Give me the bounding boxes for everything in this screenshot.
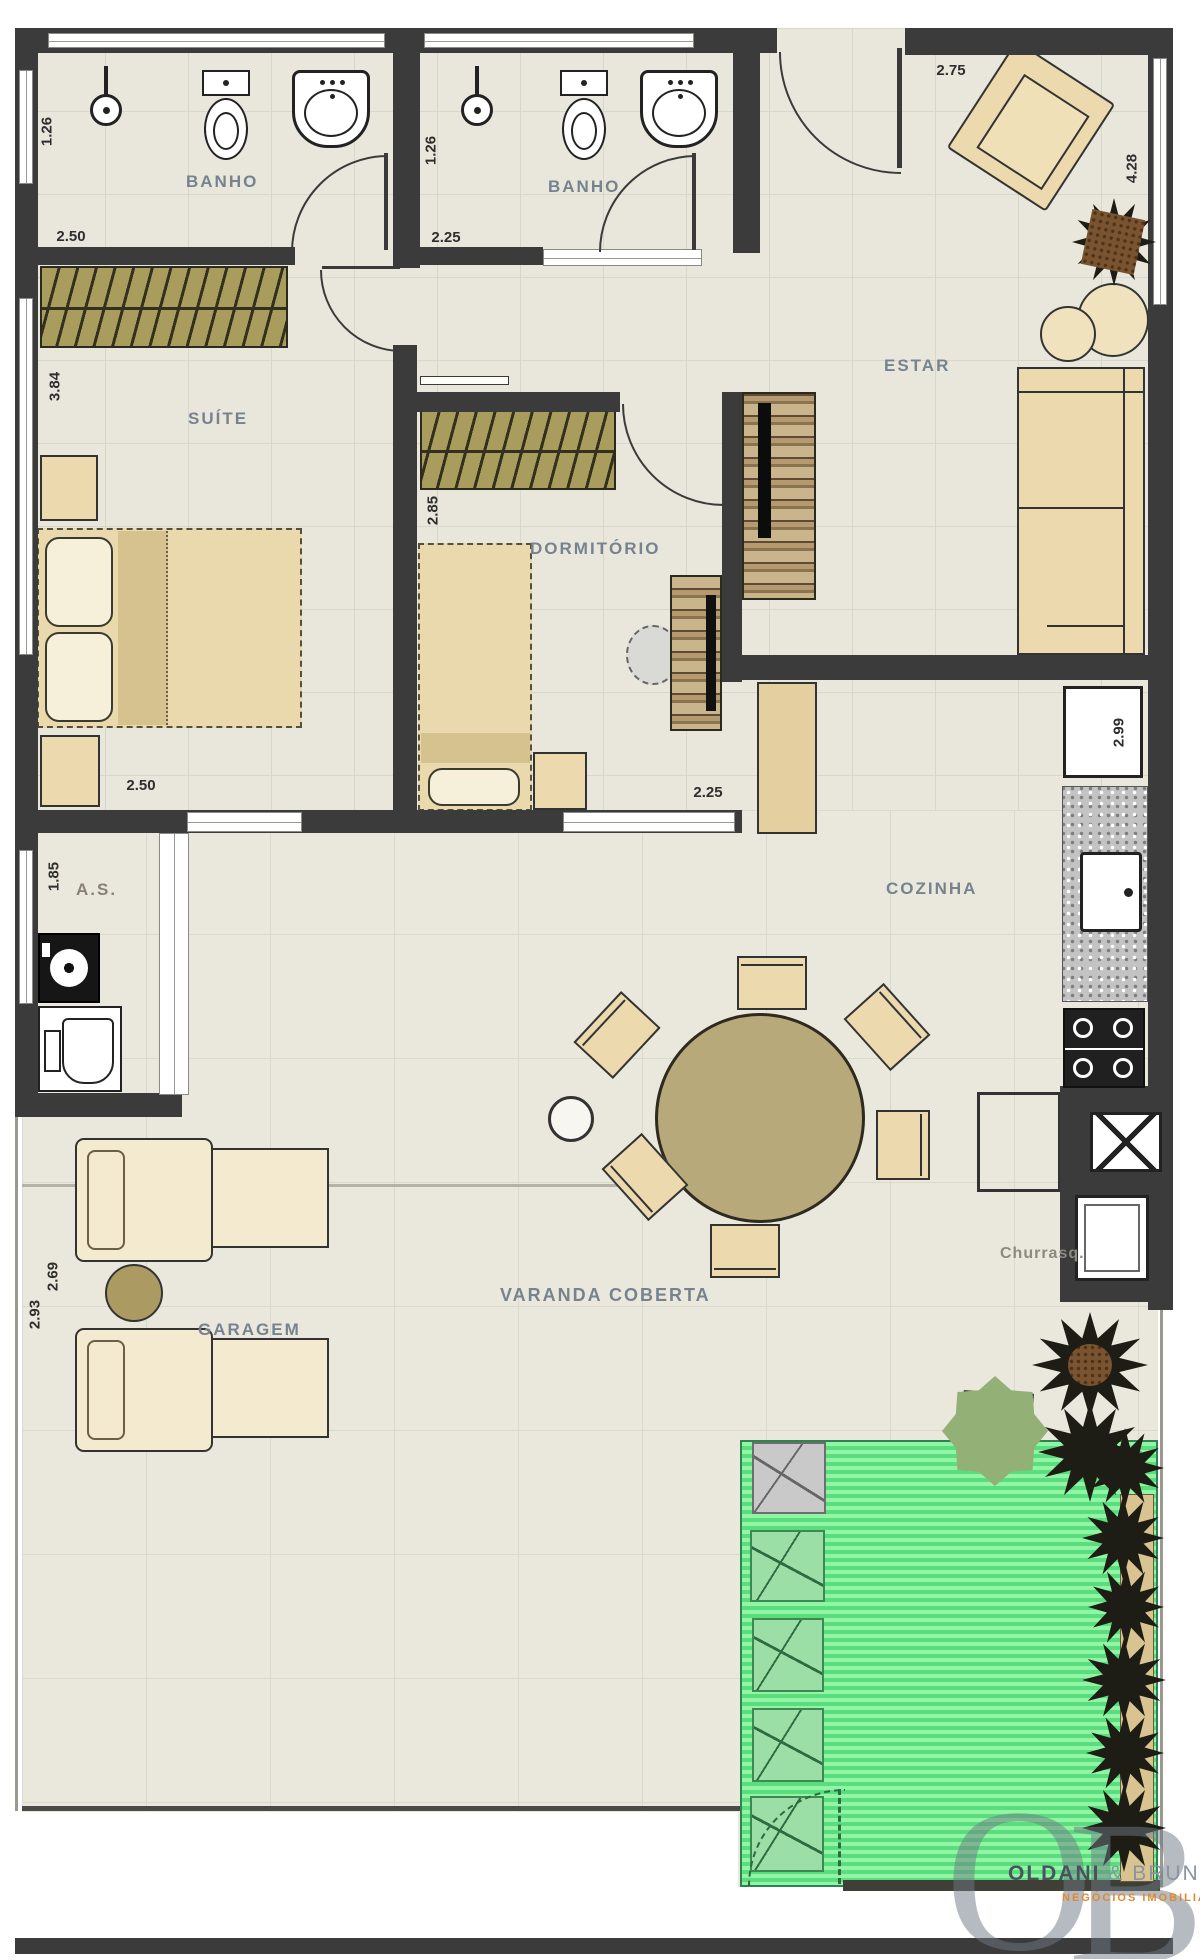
dim-estar-length: 4.28 [1124, 146, 1141, 192]
burner-icon [1073, 1018, 1093, 1038]
stepping-stone [752, 1618, 824, 1692]
shower-head-icon [461, 94, 493, 126]
lounger-foot [211, 1148, 329, 1248]
sofa-armrest-line [1047, 625, 1125, 627]
room-label-estar: ESTAR [884, 356, 950, 376]
kitchen-cabinet [757, 682, 817, 834]
plant-pot [1081, 209, 1145, 275]
toilet-icon [560, 70, 608, 96]
gate-leaf [838, 1789, 841, 1884]
toilet-bowl-icon [204, 98, 248, 160]
wall-dorm-top [417, 392, 620, 412]
window-as-left [19, 850, 33, 1004]
dim-entry-width: 2.75 [928, 62, 974, 79]
dim-banho2-width: 1.26 [423, 128, 440, 174]
tv-icon [758, 403, 771, 538]
floor-drain [548, 1096, 594, 1142]
lounger-foot [211, 1338, 329, 1438]
shower-icon [475, 66, 479, 96]
logo-amp: & [1108, 1862, 1124, 1885]
window-suite-left [19, 298, 33, 655]
laundry-tank-icon [38, 1006, 122, 1092]
sofa [1017, 367, 1145, 655]
logo-name-bold: OLDANI [1008, 1862, 1101, 1885]
toilet-icon [202, 70, 250, 96]
dining-table [655, 1013, 865, 1223]
sofa-backrest-line [1123, 369, 1125, 653]
window-estar-right [1153, 58, 1167, 305]
refrigerator [1063, 686, 1143, 778]
shower-head-icon [90, 94, 122, 126]
grill [1075, 1195, 1149, 1281]
side-table-round [1040, 306, 1096, 362]
room-label-dormitorio: DORMITÓRIO [530, 539, 661, 559]
bed-blanket [118, 531, 168, 725]
logo-name: OLDANI & BRUNNER [1008, 1862, 1200, 1886]
washing-machine-icon [38, 933, 100, 1003]
wall-suite-right [393, 345, 417, 810]
dining-chair [737, 956, 807, 1010]
room-label-as: A.S. [76, 880, 117, 900]
sofa-seat-divider [1019, 507, 1125, 509]
room-label-varanda: VARANDA COBERTA [500, 1285, 711, 1306]
dim-dorm-width: 2.25 [685, 784, 731, 801]
suite-door-leaf [322, 266, 400, 269]
pillow [428, 768, 520, 806]
prep-counter-outline [977, 1092, 1061, 1192]
stepping-stone [750, 1530, 825, 1602]
wall-banho-divider [393, 28, 420, 268]
floor-plan: BANHO BANHO SUÍTE DORMITÓRIO ESTAR COZIN… [0, 0, 1200, 1959]
nightstand [40, 455, 98, 521]
room-label-banho2: BANHO [548, 177, 620, 197]
dorm-wardrobe [420, 410, 616, 490]
nightstand [533, 752, 587, 810]
wall-estar-cozinha [742, 655, 1148, 680]
desk-monitor [706, 595, 716, 711]
dim-cozinha-length: 2.99 [1111, 710, 1128, 756]
logo-name-light: BRUNNER [1132, 1862, 1200, 1885]
dim-garagem-width: 2.93 [27, 1292, 44, 1338]
outside-strip [22, 1812, 738, 1938]
shower-icon [104, 66, 108, 96]
dim-suite-width: 2.50 [118, 777, 164, 794]
window-banho1-top [48, 33, 385, 48]
room-label-garagem: GARAGEM [198, 1320, 301, 1340]
sliding-door-as [159, 833, 189, 1095]
room-label-cozinha: COZINHA [886, 879, 977, 899]
suite-wardrobe [40, 266, 288, 348]
dim-dorm-length: 2.85 [425, 488, 442, 534]
pillow [45, 537, 113, 627]
window-banho2-top [424, 33, 694, 48]
window-suite-veranda [187, 812, 302, 832]
dining-chair [876, 1110, 930, 1180]
sun-lounger [75, 1328, 213, 1452]
faucet-dot [1124, 888, 1133, 897]
sink-icon [292, 70, 370, 148]
tv-panel [742, 392, 816, 600]
window-dorm-veranda [563, 812, 735, 832]
sun-lounger [75, 1138, 213, 1262]
left-boundary-line [15, 1117, 18, 1811]
pillow [45, 632, 113, 722]
sink-icon [640, 70, 718, 148]
burner-icon [1113, 1058, 1133, 1078]
bbq-sink-x [1090, 1112, 1162, 1172]
wall-as-bottom [15, 1093, 182, 1117]
stepping-stone [752, 1442, 826, 1514]
dorm-door-leaf [420, 376, 509, 385]
dim-as-length: 1.85 [46, 854, 63, 900]
wall-top-right [905, 28, 1173, 55]
tree-icon [942, 1376, 1048, 1486]
wall-banho2-bottom [420, 247, 543, 265]
bed-blanket [421, 733, 530, 763]
toilet-bowl-icon [562, 98, 606, 160]
dim-banho1-width: 1.26 [39, 109, 56, 155]
dim-banho2-length: 2.25 [423, 229, 469, 246]
burner-icon [1073, 1058, 1093, 1078]
wall-banho2-right [733, 28, 760, 253]
room-label-banho1: BANHO [186, 172, 258, 192]
dim-banho1-length: 2.50 [48, 228, 94, 245]
logo-tagline: NEGÓCIOS IMOBILIÁRIOS [1062, 1892, 1200, 1904]
window-banho1-left [19, 70, 33, 184]
stove-icon [1063, 1008, 1145, 1088]
wall-banho1-bottom [38, 247, 295, 265]
stepping-stone [752, 1708, 824, 1782]
garage-bottom-line [22, 1806, 740, 1811]
room-label-suite: SUÍTE [188, 409, 248, 429]
plant-core [1068, 1344, 1112, 1386]
dining-chair [710, 1224, 780, 1278]
lounger-side-table [105, 1264, 163, 1322]
wall-dorm-estar [722, 392, 742, 682]
dim-varanda-width: 2.69 [45, 1254, 62, 1300]
burner-icon [1113, 1018, 1133, 1038]
room-label-churrasqueira: Churrasq. [1000, 1245, 1085, 1263]
nightstand [40, 735, 100, 807]
dim-suite-length: 3.84 [47, 364, 64, 410]
